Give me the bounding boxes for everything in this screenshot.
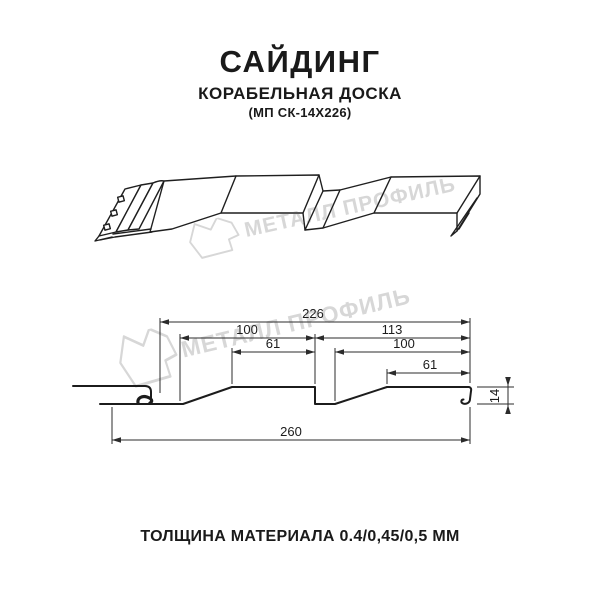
nail-hole-icon [104,224,111,230]
extension-lines [112,318,514,444]
dim-14: 14 [487,389,502,403]
dim-61-right: 61 [423,357,437,372]
material-thickness-note: ТОЛЩИНА МАТЕРИАЛА 0.4/0,45/0,5 ММ [0,528,600,546]
product-model: (МП СК-14Х226) [0,105,600,120]
dimension-lines [112,322,508,440]
product-subtitle: КОРАБЕЛЬНАЯ ДОСКА [0,84,600,104]
dim-113: 113 [382,322,403,337]
dim-226: 226 [302,306,324,321]
dim-100-left: 100 [236,322,258,337]
dim-61-left: 61 [266,336,280,351]
lock-curl [138,397,152,403]
cross-section-view: 226 100 61 113 100 61 260 14 [73,306,514,444]
dim-260: 260 [280,424,302,439]
nail-hole-icon [118,196,125,202]
section-profile [100,387,471,404]
page-title: САЙДИНГ [0,44,600,80]
panel-3d-view [95,175,480,241]
dim-100-right: 100 [393,336,415,351]
nail-hole-icon [111,210,118,216]
